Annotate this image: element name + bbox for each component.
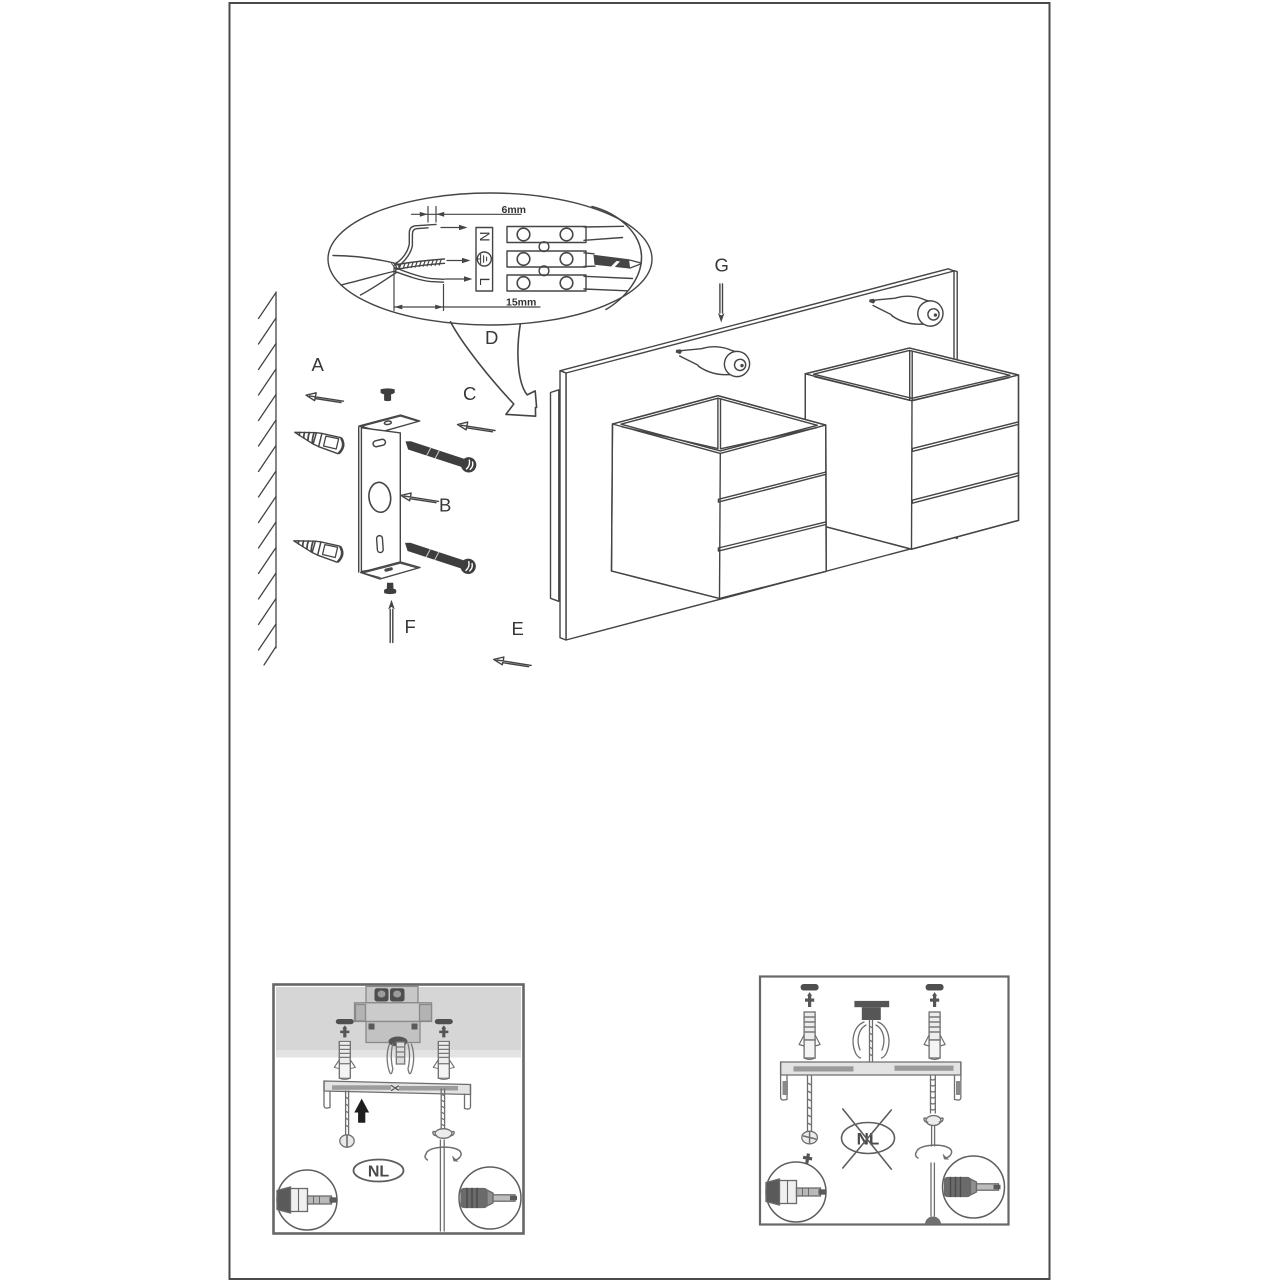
svg-text:L: L	[477, 278, 493, 286]
svg-text:G: G	[715, 255, 729, 276]
svg-text:A: A	[312, 354, 325, 375]
svg-text:F: F	[405, 616, 416, 637]
svg-text:NL: NL	[368, 1164, 390, 1181]
svg-text:15mm: 15mm	[506, 297, 536, 309]
svg-text:C: C	[463, 383, 476, 404]
svg-text:N: N	[477, 231, 493, 241]
svg-text:E: E	[512, 618, 524, 639]
svg-text:D: D	[485, 327, 498, 348]
svg-text:B: B	[439, 495, 451, 516]
svg-text:6mm: 6mm	[502, 204, 527, 216]
